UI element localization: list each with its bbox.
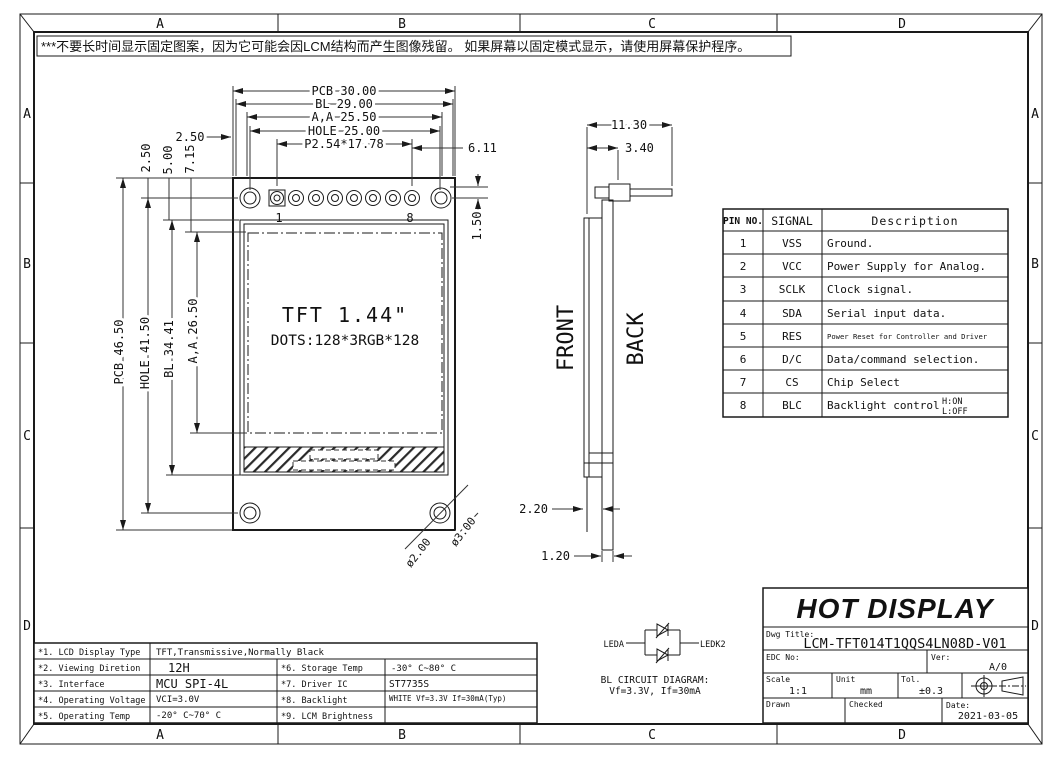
dim-edge-250: 2.50 bbox=[176, 130, 205, 144]
svg-text:-20° C~70° C: -20° C~70° C bbox=[156, 711, 221, 721]
spec-row-1: *1. LCD Display Type TFT,Transmissive,No… bbox=[38, 648, 325, 658]
zone-col-d-bottom: D bbox=[898, 728, 906, 743]
zone-row-b-right: B bbox=[1031, 257, 1039, 272]
dim-side-total: 11.30 bbox=[611, 118, 647, 132]
dim-hole-width: HOLE 25.00 bbox=[308, 124, 380, 138]
svg-text:2: 2 bbox=[740, 260, 747, 273]
dim-hole-height: HOLE 41.50 bbox=[138, 317, 152, 389]
bl-leda-label: LEDA bbox=[604, 640, 624, 650]
svg-text:*5. Operating Temp: *5. Operating Temp bbox=[38, 712, 130, 722]
svg-text:VCI=3.0V: VCI=3.0V bbox=[156, 695, 200, 705]
dim-150: 1.50 bbox=[470, 212, 484, 241]
svg-text:*2. Viewing Diretion: *2. Viewing Diretion bbox=[38, 664, 140, 674]
dim-pcb-height: PCB 46.50 bbox=[112, 319, 126, 384]
warning-banner: ***不要长时间显示固定图案，因为它可能会因LCM结构而产生图像残留。 如果屏幕… bbox=[37, 36, 791, 56]
svg-text:*8. Backlight: *8. Backlight bbox=[281, 696, 348, 706]
dim-pcb-thickness: 1.20 bbox=[541, 549, 570, 563]
drawing-sheet: A B C D A B C D A B C D A B C D ***不要长时间… bbox=[0, 0, 1060, 759]
title-block: HOT DISPLAY Dwg Title: LCM-TFT014T1QQS4L… bbox=[763, 588, 1028, 723]
pcb-outline bbox=[233, 178, 455, 530]
dim-side-header: 3.40 bbox=[625, 141, 654, 155]
dim-top-715: 7.15 bbox=[183, 145, 197, 174]
company-logo: HOT DISPLAY bbox=[796, 593, 994, 624]
svg-text:*1. LCD Display Type: *1. LCD Display Type bbox=[38, 648, 140, 658]
bl-ledk2-label: LEDK2 bbox=[700, 640, 726, 650]
svg-text:5: 5 bbox=[740, 330, 747, 343]
ver-value: A/0 bbox=[989, 662, 1007, 673]
screen-size-label: TFT 1.44" bbox=[282, 303, 408, 327]
svg-text:Chip Select: Chip Select bbox=[827, 376, 900, 389]
hole-callouts: ø2.00 ø3.00 bbox=[403, 485, 479, 570]
pin-table-header-no: PIN NO. bbox=[723, 216, 763, 227]
scale-value: 1:1 bbox=[789, 686, 807, 697]
svg-text:*4. Operating Voltage: *4. Operating Voltage bbox=[38, 696, 145, 706]
zone-row-d-left: D bbox=[23, 619, 31, 634]
svg-text:*6. Storage Temp: *6. Storage Temp bbox=[281, 664, 363, 674]
ver-label: Ver: bbox=[931, 653, 950, 662]
pin-pads bbox=[269, 190, 420, 206]
zone-col-a-bottom: A bbox=[156, 728, 164, 743]
zone-row-a-left: A bbox=[23, 107, 31, 122]
zone-row-d-right: D bbox=[1031, 619, 1039, 634]
svg-text:Ground.: Ground. bbox=[827, 237, 873, 250]
fpc-trace-1 bbox=[310, 450, 378, 459]
svg-text:TFT,Transmissive,Normally Blac: TFT,Transmissive,Normally Black bbox=[156, 648, 325, 658]
screen-dots-label: DOTS:128*3RGB*128 bbox=[271, 333, 419, 349]
svg-text:6: 6 bbox=[740, 353, 747, 366]
dia-outer-label: ø3.00 bbox=[448, 515, 479, 549]
zone-col-c-bottom: C bbox=[648, 728, 656, 743]
zone-col-a-top: A bbox=[156, 17, 164, 32]
svg-text:VSS: VSS bbox=[782, 237, 802, 250]
pin-table-header-desc: Description bbox=[871, 214, 958, 228]
warning-text: ***不要长时间显示固定图案，因为它可能会因LCM结构而产生图像残留。 如果屏幕… bbox=[41, 39, 750, 54]
dim-module-thickness: 2.20 bbox=[519, 502, 548, 516]
svg-text:SDA: SDA bbox=[782, 307, 802, 320]
zone-col-b-bottom: B bbox=[398, 728, 406, 743]
drawn-label: Drawn bbox=[766, 700, 790, 709]
svg-text:SCLK: SCLK bbox=[779, 283, 806, 296]
unit-value: mm bbox=[860, 686, 872, 697]
svg-text:3: 3 bbox=[740, 283, 747, 296]
dim-top-250: 2.50 bbox=[139, 144, 153, 173]
date-label: Date: bbox=[946, 701, 970, 710]
side-view: 11.30 3.40 FRONT BACK 2.20 1.20 bbox=[519, 118, 672, 563]
zone-row-c-left: C bbox=[23, 429, 31, 444]
svg-text:D/C: D/C bbox=[782, 353, 802, 366]
svg-text:Clock signal.: Clock signal. bbox=[827, 283, 913, 296]
dim-bl-width: BL 29.00 bbox=[315, 97, 373, 111]
dim-aa-width: A,A 25.50 bbox=[311, 110, 376, 124]
svg-text:*9. LCM Brightness: *9. LCM Brightness bbox=[281, 712, 373, 722]
dwg-title-value: LCM-TFT014T1QQS4LN08D-V01 bbox=[803, 636, 1006, 652]
front-dims-top: PCB 30.00 BL 29.00 A,A 25.50 HOLE 25.00 … bbox=[176, 84, 497, 240]
edc-no-label: EDC No: bbox=[766, 653, 800, 662]
drawing-canvas: A B C D A B C D A B C D A B C D ***不要长时间… bbox=[0, 0, 1060, 759]
led-symbol-top bbox=[656, 623, 669, 638]
zone-col-b-top: B bbox=[398, 17, 406, 32]
svg-text:8: 8 bbox=[740, 399, 747, 412]
svg-text:RES: RES bbox=[782, 330, 802, 343]
tol-label: Tol. bbox=[901, 675, 920, 684]
zone-row-c-right: C bbox=[1031, 429, 1039, 444]
date-value: 2021-03-05 bbox=[958, 711, 1018, 722]
svg-text:*7. Driver IC: *7. Driver IC bbox=[281, 680, 348, 690]
svg-text:VCC: VCC bbox=[782, 260, 802, 273]
dim-aa-height: A,A 26.50 bbox=[186, 298, 200, 363]
fpc-trace-2 bbox=[293, 461, 395, 470]
front-dims-left: PCB 46.50 HOLE 41.50 BL 34.41 A,A 26.50 … bbox=[112, 144, 247, 530]
svg-text:Data/command selection.: Data/command selection. bbox=[827, 353, 979, 366]
pin8-state-low: L:OFF bbox=[942, 407, 968, 417]
zone-col-c-top: C bbox=[648, 17, 656, 32]
pin8-label: 8 bbox=[406, 211, 413, 225]
svg-text:Power Reset for Controller and: Power Reset for Controller and Driver bbox=[827, 332, 988, 341]
spec-row-5: *5. Operating Temp -20° C~70° C *9. LCM … bbox=[38, 711, 373, 722]
front-view: TFT 1.44" DOTS:128*3RGB*128 1 8 bbox=[112, 84, 497, 570]
dim-pin-pitch: P2.54*17.78 bbox=[304, 137, 383, 151]
dia-inner-label: ø2.00 bbox=[403, 536, 434, 570]
svg-text:-30° C~80° C: -30° C~80° C bbox=[391, 664, 456, 674]
svg-text:BLC: BLC bbox=[782, 399, 802, 412]
dim-top-500: 5.00 bbox=[161, 146, 175, 175]
svg-text:7: 7 bbox=[740, 376, 747, 389]
bl-circuit-title: BL CIRCUIT DIAGRAM: bbox=[601, 675, 710, 686]
unit-label: Unit bbox=[836, 675, 855, 684]
back-label: BACK bbox=[624, 312, 649, 366]
svg-text:ST7735S: ST7735S bbox=[389, 679, 429, 690]
checked-label: Checked bbox=[849, 700, 883, 709]
tol-value: ±0.3 bbox=[919, 686, 943, 697]
svg-text:1: 1 bbox=[740, 237, 747, 250]
dim-611: 6.11 bbox=[468, 141, 497, 155]
pin8-state-high: H:ON bbox=[942, 397, 962, 407]
svg-text:Backlight control: Backlight control bbox=[827, 399, 940, 412]
svg-text:4: 4 bbox=[740, 307, 747, 320]
svg-text:CS: CS bbox=[785, 376, 798, 389]
zone-row-b-left: B bbox=[23, 257, 31, 272]
svg-text:Serial input data.: Serial input data. bbox=[827, 307, 946, 320]
bl-circuit-subtitle: Vf=3.3V, If=30mA bbox=[609, 686, 701, 697]
zone-col-d-top: D bbox=[898, 17, 906, 32]
pin-table-header-signal: SIGNAL bbox=[771, 214, 813, 228]
mounting-holes bbox=[240, 188, 451, 523]
svg-text:Power Supply for Analog.: Power Supply for Analog. bbox=[827, 260, 986, 273]
front-label: FRONT bbox=[554, 305, 579, 371]
svg-text:WHITE Vf=3.3V If=30mA(Typ): WHITE Vf=3.3V If=30mA(Typ) bbox=[389, 694, 506, 703]
side-body bbox=[584, 184, 672, 550]
dim-pcb-width: PCB 30.00 bbox=[311, 84, 376, 98]
pin-table: PIN NO. SIGNAL Description 1 VSS Ground.… bbox=[723, 209, 1008, 417]
svg-text:12H: 12H bbox=[168, 661, 190, 675]
dim-bl-height: BL 34.41 bbox=[162, 320, 176, 378]
pin1-label: 1 bbox=[275, 211, 282, 225]
zone-row-a-right: A bbox=[1031, 107, 1039, 122]
spec-table: *1. LCD Display Type TFT,Transmissive,No… bbox=[34, 643, 537, 723]
svg-text:MCU SPI-4L: MCU SPI-4L bbox=[156, 677, 228, 691]
svg-text:*3. Interface: *3. Interface bbox=[38, 680, 105, 690]
scale-label: Scale bbox=[766, 675, 790, 684]
led-symbol-bottom bbox=[656, 648, 669, 663]
bl-circuit: LEDA LEDK2 BL CIRCUIT DIAGRAM: Vf=3.3V, … bbox=[601, 623, 726, 697]
